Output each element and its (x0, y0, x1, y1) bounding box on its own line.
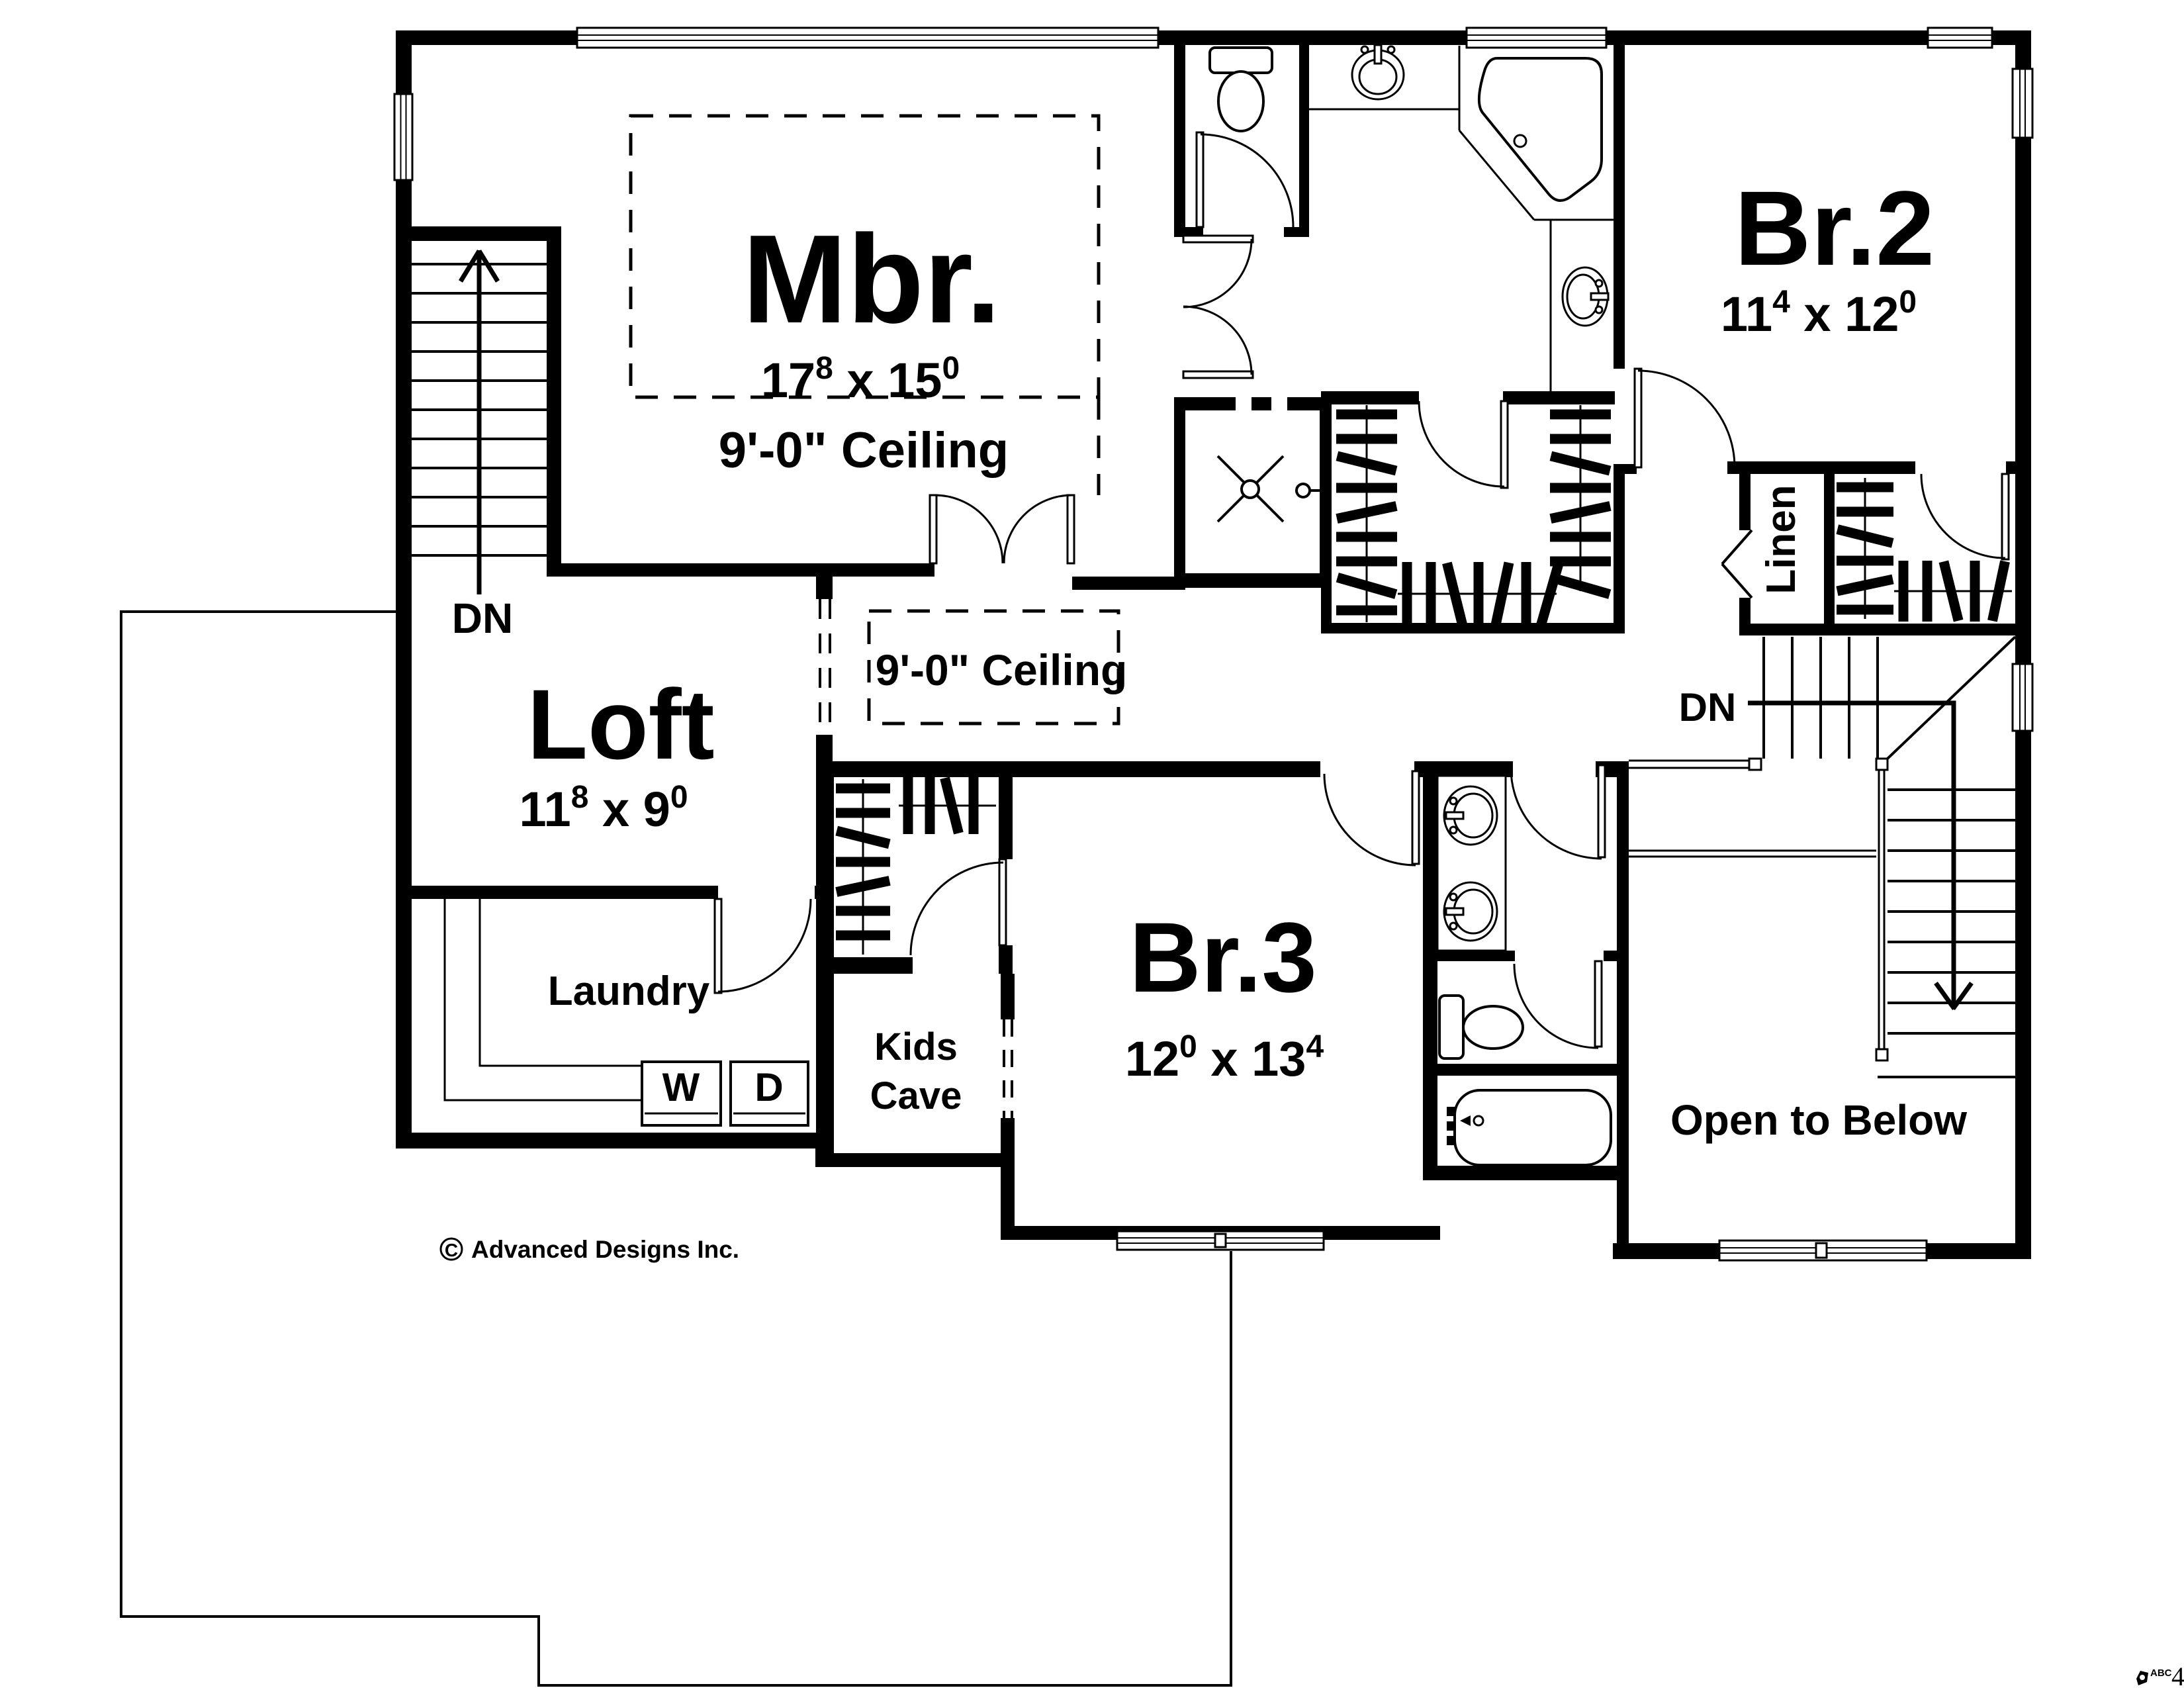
svg-text:Kids: Kids (874, 1025, 958, 1068)
svg-text:120 x 134: 120 x 134 (1125, 1029, 1324, 1086)
svg-text:Advanced Designs Inc.: Advanced Designs Inc. (471, 1236, 739, 1263)
svg-text:D: D (754, 1065, 783, 1109)
svg-text:114 x 120: 114 x 120 (1721, 285, 1917, 342)
svg-text:Mbr.: Mbr. (743, 209, 1001, 350)
svg-text:DN: DN (452, 594, 513, 642)
svg-text:ABC: ABC (2150, 1667, 2172, 1679)
svg-text:118 x 90: 118 x 90 (519, 780, 688, 837)
svg-text:9'-0" Ceiling: 9'-0" Ceiling (719, 422, 1009, 479)
svg-text:178 x 150: 178 x 150 (761, 351, 960, 408)
svg-text:Loft: Loft (527, 669, 714, 780)
svg-text:W: W (662, 1065, 700, 1109)
svg-text:4: 4 (2171, 1662, 2184, 1688)
svg-text:Open to Below: Open to Below (1670, 1096, 1967, 1144)
svg-text:DN: DN (1679, 685, 1737, 729)
svg-text:Br.2: Br.2 (1735, 169, 1934, 287)
svg-text:Laundry: Laundry (548, 968, 710, 1014)
svg-text:Linen: Linen (1758, 485, 1804, 594)
svg-text:9'-0" Ceiling: 9'-0" Ceiling (876, 645, 1128, 694)
svg-text:Br.3: Br.3 (1129, 902, 1317, 1013)
svg-text:Cave: Cave (870, 1074, 962, 1117)
svg-text:C: C (445, 1240, 458, 1260)
